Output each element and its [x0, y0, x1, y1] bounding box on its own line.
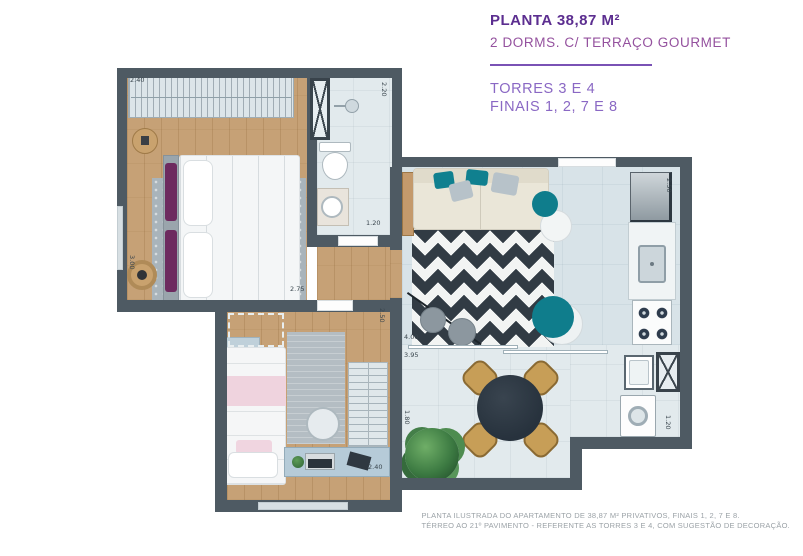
wall-left-bedroom1 [117, 68, 127, 312]
dim-bedroom1-width: 2.40 [130, 77, 144, 84]
wall-bathroom-right [392, 68, 402, 167]
sliding-door-panel [408, 345, 518, 349]
dim-living-width: 4.00 [404, 334, 418, 341]
wall-bedrooms-divider [117, 300, 402, 312]
wall-top-bedrooms [117, 68, 402, 78]
desk-plant [292, 456, 304, 468]
future-closet-dashed [228, 313, 284, 347]
brochure-page: 2.40 3.00 2.20 1.20 2.75 2.50 2.50 4.00 … [0, 0, 803, 556]
terrace-plant [405, 428, 459, 482]
finais-line: FINAIS 1, 2, 7 E 8 [490, 98, 790, 116]
dim-bathroom-width: 1.20 [366, 220, 380, 227]
laundry-tank [624, 355, 654, 390]
plan-subtitle: 2 DORMS. C/ TERRAÇO GOURMET [490, 35, 790, 50]
bedroom1-window [117, 206, 123, 270]
floorplan: 2.40 3.00 2.20 1.20 2.75 2.50 2.50 4.00 … [108, 60, 694, 513]
bedroom2-door [317, 300, 353, 311]
bedroom2-window [258, 502, 348, 510]
dim-terrace-depth: 1.80 [403, 410, 410, 424]
plan-info-block: PLANTA 38,87 M² 2 DORMS. C/ TERRAÇO GOUR… [490, 12, 790, 116]
purple-cushion [165, 163, 177, 221]
sink-drain [650, 262, 654, 266]
dim-bedroom1-depth: 3.00 [128, 255, 135, 269]
washing-machine [620, 395, 656, 437]
dim-bathroom-depth: 2.20 [380, 82, 387, 96]
dim-bedroom2-depth: 2.50 [378, 308, 385, 322]
sofa-pillow-gray [490, 172, 519, 196]
wall-left-bedroom2 [215, 300, 227, 512]
shower-partition [310, 78, 330, 140]
wall-bottom-terrace [390, 478, 582, 490]
divider-line [490, 64, 652, 66]
bed2-pillow [228, 452, 278, 478]
bed2-pink-band [220, 376, 286, 406]
dim-terrace-width: 3.95 [404, 352, 418, 359]
dim-hall-width: 2.75 [290, 286, 304, 293]
nightstand-decor [141, 136, 149, 145]
wardrobe-divider [368, 363, 369, 446]
pouf [420, 307, 446, 333]
purple-cushion [165, 230, 177, 292]
dim-kitchen-depth: 2.50 [665, 178, 672, 192]
tank-basin [629, 360, 649, 385]
entry-door [558, 158, 616, 167]
sliding-door-panel [503, 350, 608, 354]
laptop-screen [308, 459, 332, 468]
armchair-teal [532, 296, 574, 338]
bedroom1-wardrobe [128, 76, 294, 118]
ottoman-center [137, 270, 147, 280]
bed-pillow [183, 160, 213, 226]
bed-pillow [183, 232, 213, 298]
washer-door [628, 406, 648, 426]
wall-top-living [392, 157, 692, 167]
stove [632, 300, 672, 345]
desk-chair [306, 407, 340, 441]
hall-living-opening [390, 250, 402, 298]
shower-head [345, 99, 359, 113]
disclaimer-line2: TÉRREO AO 21º PAVIMENTO - REFERENTE AS T… [421, 521, 790, 531]
shower-arm [334, 105, 346, 107]
wardrobe-rod [131, 97, 291, 98]
wall-center-vertical [390, 167, 402, 512]
towers-line: TORRES 3 E 4 [490, 80, 790, 98]
wall-right-main [680, 157, 692, 449]
dim-laundry-depth: 1.20 [664, 415, 671, 429]
dining-table [477, 375, 543, 441]
sofa-seam [480, 183, 481, 229]
bathroom-door [338, 236, 378, 246]
dim-bedroom2-width: 2.40 [368, 464, 382, 471]
disclaimer-line1: PLANTA ILUSTRADA DO APARTAMENTO DE 38,87… [421, 511, 790, 521]
toilet-tank [319, 142, 351, 152]
bath-sink [321, 196, 343, 218]
bedroom2-wardrobe [348, 362, 388, 447]
disclaimer: PLANTA ILUSTRADA DO APARTAMENTO DE 38,87… [421, 511, 790, 530]
wall-bottom-right [570, 437, 692, 449]
pouf [448, 318, 476, 346]
plan-title: PLANTA 38,87 M² [490, 12, 790, 29]
towers-block: TORRES 3 E 4 FINAIS 1, 2, 7 E 8 [490, 80, 790, 116]
side-table-teal [532, 191, 558, 217]
laptop [305, 453, 335, 470]
shaft-box [656, 352, 680, 392]
hallway-floor [317, 247, 400, 300]
